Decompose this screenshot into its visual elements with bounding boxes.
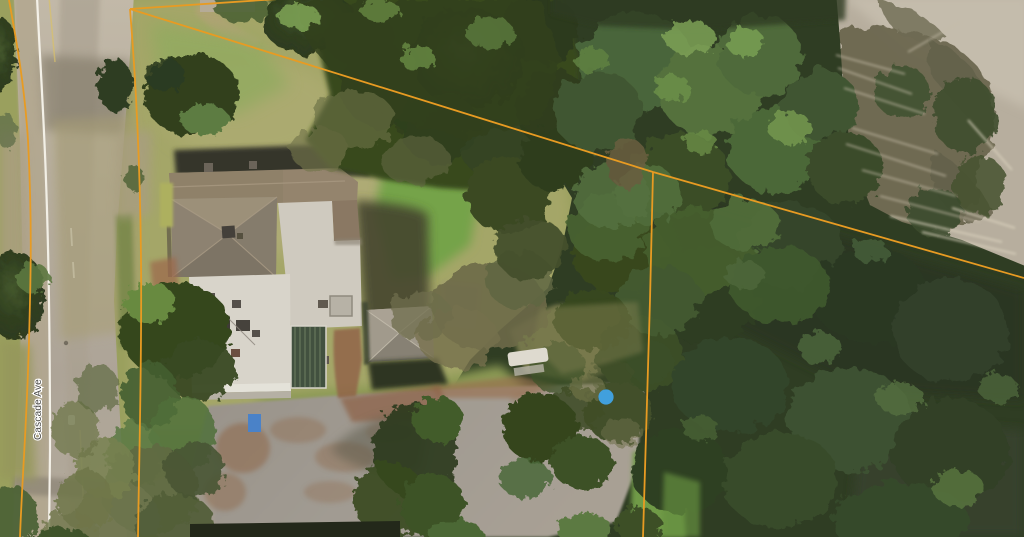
svg-text:Cascade Ave: Cascade Ave <box>33 379 44 440</box>
